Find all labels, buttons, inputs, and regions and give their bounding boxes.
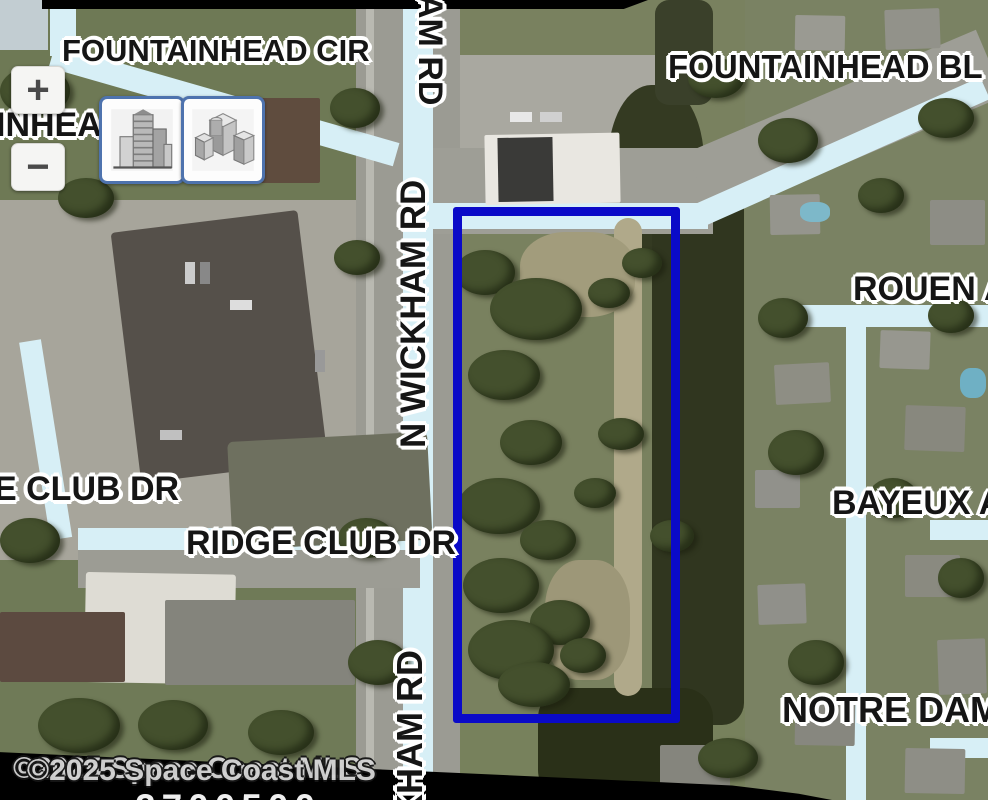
tree-canopy <box>698 738 758 778</box>
street-label-wickham-top: AM RD <box>413 0 447 119</box>
aerial-patch <box>800 202 830 222</box>
aerial-patch <box>884 8 940 50</box>
aerial-patch <box>755 470 800 508</box>
zoom-in-button[interactable]: + <box>11 66 65 114</box>
aerial-patch <box>540 112 562 122</box>
street-label-notre-dame: NOTRE DAM <box>782 692 988 728</box>
street-label-wickham-mid: N WICKHAM RD <box>396 168 431 448</box>
aerial-patch <box>258 98 320 183</box>
aerial-patch <box>0 612 125 682</box>
tree-canopy <box>334 240 380 275</box>
street-label-ridge-club-dr: RIDGE CLUB DR <box>186 526 456 560</box>
map-style-3d-button[interactable] <box>181 96 265 184</box>
tree-canopy <box>758 118 818 163</box>
tree-canopy <box>768 430 824 475</box>
map-attribution-ghost: ©2025 Space Coast MLS <box>27 754 376 788</box>
street-label-e-club-dr: E CLUB DR <box>0 472 179 506</box>
tree-canopy <box>330 88 380 128</box>
buildings-2d-icon <box>109 107 175 173</box>
minus-icon: − <box>26 145 49 190</box>
aerial-patch <box>185 262 195 284</box>
aerial-patch <box>757 583 806 625</box>
tree-canopy <box>58 178 114 218</box>
aerial-patch <box>774 362 831 405</box>
tree-canopy <box>248 710 314 755</box>
tree-canopy <box>858 178 904 213</box>
aerial-patch <box>200 262 210 284</box>
aerial-patch <box>497 137 553 202</box>
street-label-bayeux: BAYEUX A <box>832 486 988 520</box>
street-label-wickham-bottom: KHAM RD <box>392 595 428 800</box>
aerial-patch <box>905 748 966 794</box>
aerial-patch <box>930 200 985 245</box>
aerial-patch <box>230 300 252 310</box>
aerial-patch <box>795 15 846 51</box>
property-boundary-overlay <box>453 207 680 723</box>
zoom-out-button[interactable]: − <box>11 143 65 191</box>
tree-canopy <box>918 98 974 138</box>
buildings-3d-icon <box>190 107 256 173</box>
aerial-patch <box>315 350 325 372</box>
aerial-patch <box>510 112 532 122</box>
tree-canopy <box>38 698 120 753</box>
street-label-rouen: ROUEN A <box>853 272 988 306</box>
tree-canopy <box>788 640 844 685</box>
street-label-fountainhead-bl: FOUNTAINHEAD BL <box>668 50 983 83</box>
street-label-fountainhead-cir: FOUNTAINHEAD CIR <box>62 35 370 66</box>
aerial-patch <box>160 430 182 440</box>
tree-canopy <box>758 298 808 338</box>
tree-canopy <box>138 700 208 750</box>
aerial-patch <box>960 368 986 398</box>
aerial-patch <box>0 0 48 50</box>
aerial-patch <box>930 520 988 540</box>
aerial-map[interactable]: FOUNTAINHEAD CIR FOUNTAINHEAD BL INHEA A… <box>0 0 988 800</box>
aerial-patch <box>165 600 355 685</box>
plus-icon: + <box>26 68 49 113</box>
aerial-patch <box>937 638 987 695</box>
aerial-patch <box>904 405 966 452</box>
tree-canopy <box>938 558 984 598</box>
clipped-caption-fragment: 2700500 <box>135 787 465 800</box>
aerial-patch <box>879 330 930 370</box>
imagery-edge-top <box>42 0 648 9</box>
tree-canopy <box>0 518 60 563</box>
map-style-2d-button[interactable] <box>99 96 185 184</box>
